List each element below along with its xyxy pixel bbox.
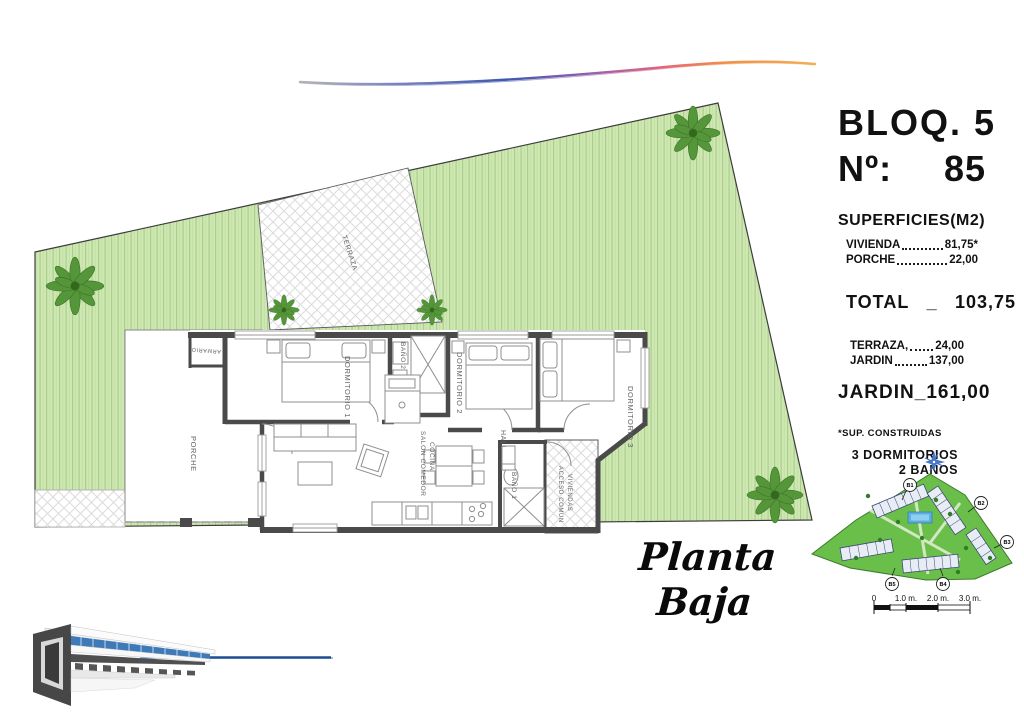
svg-text:B4: B4 [939, 582, 947, 588]
svg-text:B3: B3 [1003, 540, 1010, 546]
dot-leader [910, 349, 933, 351]
row-label: VIVIENDA [846, 238, 900, 253]
scale-bar: 0 1.0 m. 2.0 m. 3.0 m. [860, 590, 1010, 624]
scale-bar-segments [874, 601, 970, 614]
site-map: B1 B2 B3 B4 B5 [810, 448, 1018, 596]
bed-dorm1 [267, 340, 385, 402]
garden-value: 161,00 [926, 382, 990, 404]
svg-text:B1: B1 [906, 483, 913, 489]
decorative-swoosh [295, 56, 820, 92]
logo-building [33, 624, 215, 706]
row-label: JARDIN [850, 354, 893, 369]
label-dorm3: DORMITORIO 3 [626, 386, 635, 448]
dot-leader [902, 248, 942, 250]
block-title: BLOQ. 5 [838, 104, 1016, 142]
row-value: 24,00 [935, 339, 964, 354]
unit-number: 85 [944, 150, 986, 188]
row-value: 137,00 [929, 354, 964, 369]
developer-logo [15, 612, 345, 717]
built-surface-rows: VIVIENDA 81,75* PORCHE 22,00 [838, 238, 1016, 268]
scale-tick-1: 1.0 m. [895, 594, 917, 603]
outdoor-surface-rows: TERRAZA, 24,00 JARDIN 137,00 [838, 339, 1016, 369]
site-plan-drawing: TERRAZA ARMARIO DORMITORIO 1 BAÑO 2 DORM… [20, 90, 830, 600]
surface-row-vivienda: VIVIENDA 81,75* [846, 238, 978, 253]
dot-leader [895, 364, 927, 366]
floor-plan-sheet: TERRAZA ARMARIO DORMITORIO 1 BAÑO 2 DORM… [0, 0, 1024, 728]
label-acceso-2: VIVIENDAS [566, 474, 572, 511]
garden-hatch-strip [35, 490, 125, 527]
label-porche: PORCHE [189, 436, 198, 472]
tv-cabinet [298, 462, 332, 485]
floor-title: Planta Baja [593, 534, 819, 624]
sofa [274, 424, 356, 451]
label-bano1: BAÑO 1 [510, 472, 519, 499]
kitchen-counter [372, 502, 492, 525]
label-salon-1: SALON COMEDOR [419, 431, 426, 497]
label-bano2: BAÑO 2 [399, 342, 408, 369]
garden-separator: _ [915, 382, 927, 404]
garden-total-row: JARDIN _ 161,00 [838, 382, 1016, 404]
surfaces-footnote: *SUP. CONSTRUIDAS [838, 428, 1016, 439]
scale-tick-2: 2.0 m. [927, 594, 949, 603]
unit-label: Nº: [838, 150, 892, 188]
total-separator: _ [927, 292, 938, 313]
info-panel: BLOQ. 5 Nº: 85 SUPERFICIES(M2) VIVIENDA … [838, 104, 1016, 478]
garden-label: JARDIN [838, 382, 915, 404]
unit-row: Nº: 85 [838, 150, 1016, 188]
kitchen-column [385, 375, 420, 423]
row-label: TERRAZA, [850, 339, 908, 354]
compass-icon [925, 451, 945, 471]
label-acceso-1: ACCESO COMUN [557, 466, 563, 523]
surface-row-jardin: JARDIN 137,00 [850, 354, 964, 369]
row-value: 22,00 [949, 253, 978, 268]
dot-leader [897, 263, 947, 265]
site-map-pool [908, 512, 932, 523]
surface-row-porche: PORCHE 22,00 [846, 253, 978, 268]
total-value: 103,75 [955, 292, 1016, 313]
label-dorm2: DORMITORIO 2 [455, 352, 464, 414]
row-label: PORCHE [846, 253, 895, 268]
total-row: TOTAL _ 103,75 [838, 292, 1016, 313]
surface-row-terraza: TERRAZA, 24,00 [850, 339, 964, 354]
label-salon-2: COCINA [428, 442, 435, 471]
label-hall: HALL [499, 430, 506, 450]
svg-text:B5: B5 [888, 582, 895, 588]
label-dorm1: DORMITORIO 1 [343, 356, 352, 418]
row-value: 81,75* [945, 238, 978, 253]
surfaces-title: SUPERFICIES(M2) [838, 212, 1016, 230]
svg-text:B2: B2 [977, 501, 984, 507]
total-label: TOTAL [846, 292, 909, 313]
